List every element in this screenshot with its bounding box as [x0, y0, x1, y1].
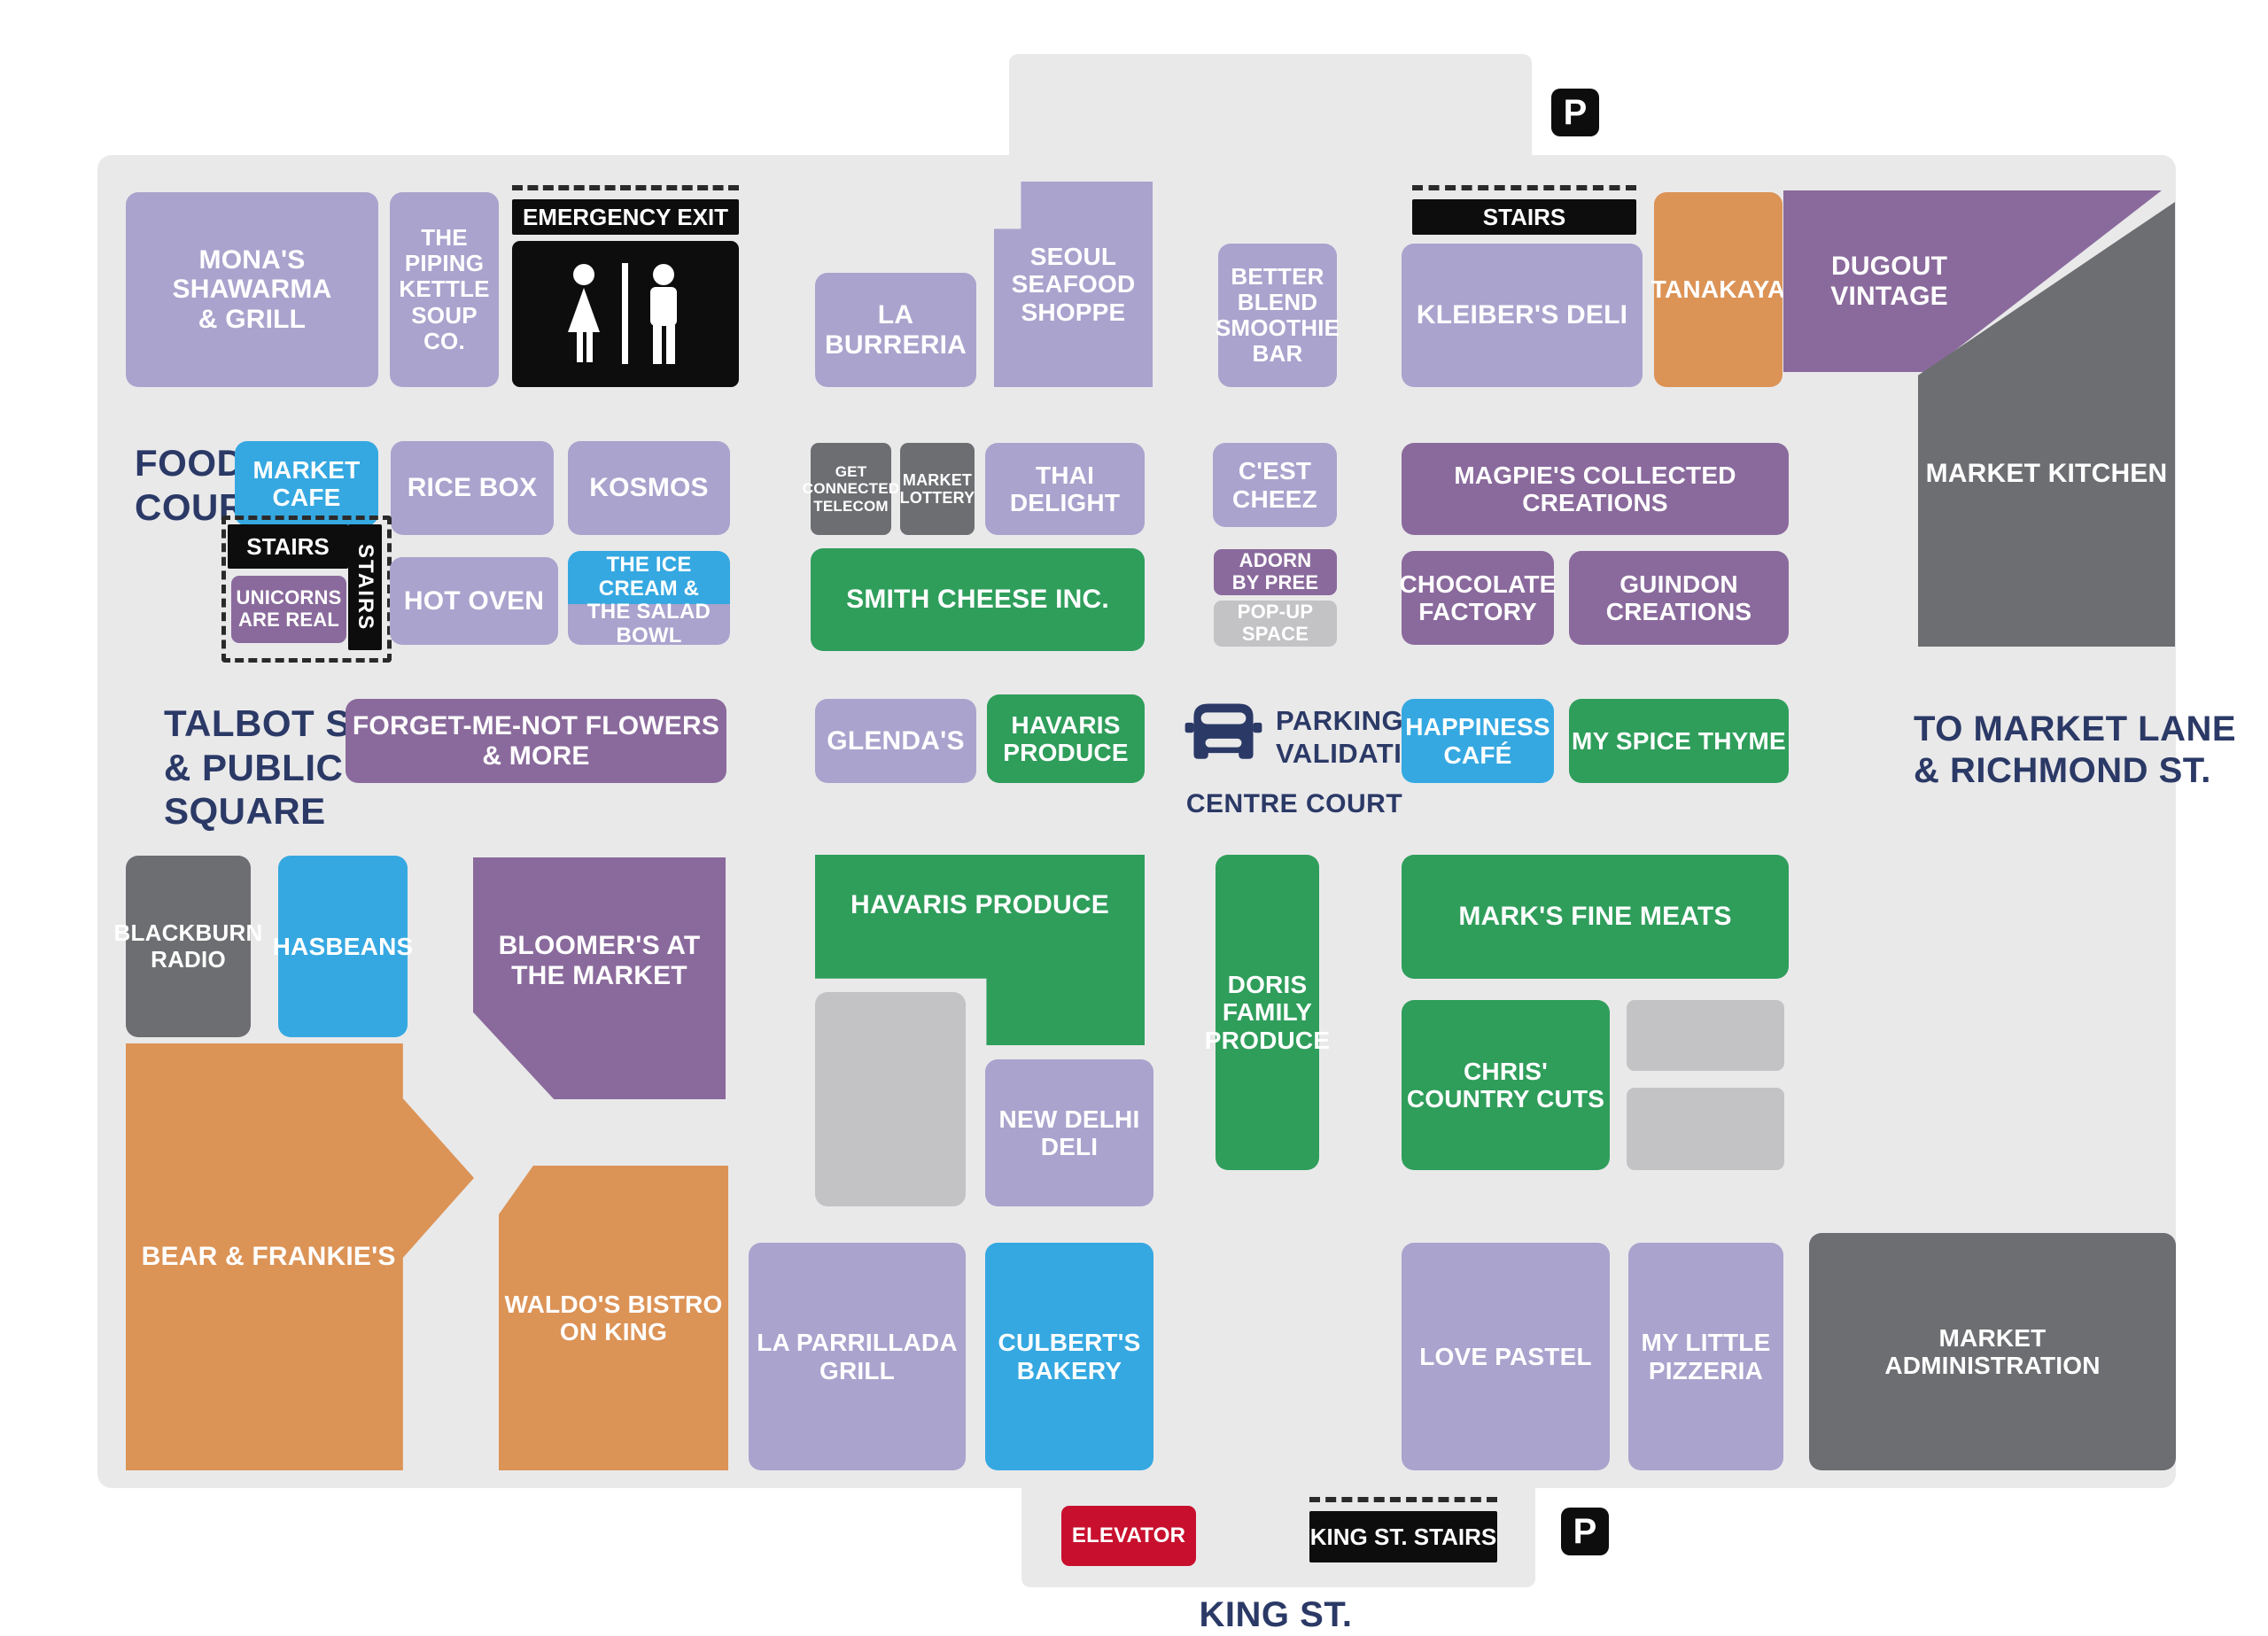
store-ice-cream[interactable]: THE ICE CREAM &: [568, 551, 730, 604]
vacant-space[interactable]: [815, 992, 966, 1206]
parking-icon-top: P: [1551, 89, 1599, 136]
store-kleibers-deli[interactable]: KLEIBER'S DELI: [1402, 244, 1643, 387]
store-label: BLOOMER'S AT THE MARKET: [499, 931, 701, 1026]
store-kosmos[interactable]: KOSMOS: [568, 441, 730, 535]
store-label: WALDO'S BISTRO ON KING: [505, 1291, 723, 1346]
vacant-space[interactable]: [1627, 1000, 1784, 1071]
store-label: NEW DELHI DELI: [999, 1105, 1140, 1161]
store-la-burreria[interactable]: LA BURRERIA: [815, 273, 976, 387]
store-havaris-produce-small[interactable]: HAVARIS PRODUCE: [987, 694, 1145, 783]
store-culberts-bakery[interactable]: CULBERT'S BAKERY: [985, 1243, 1153, 1470]
store-la-parrillada-grill[interactable]: LA PARRILLADA GRILL: [749, 1243, 966, 1470]
store-label: HOT OVEN: [404, 586, 544, 616]
store-chris-country-cuts[interactable]: CHRIS' COUNTRY CUTS: [1402, 1000, 1610, 1170]
vacant-space[interactable]: [1627, 1088, 1784, 1170]
stairs-food-court-vertical[interactable]: STAIRS: [348, 524, 382, 650]
store-market-cafe[interactable]: MARKET CAFE: [235, 441, 378, 526]
store-label: HAVARIS PRODUCE: [1003, 711, 1128, 767]
store-better-blend[interactable]: BETTER BLEND SMOOTHIE BAR: [1218, 244, 1337, 387]
store-adorn-by-pree[interactable]: ADORN BY PREE: [1214, 549, 1337, 595]
restrooms[interactable]: [512, 241, 739, 387]
parking-icon-bottom: P: [1561, 1508, 1609, 1555]
store-label: THE SALAD BOWL: [568, 601, 730, 648]
emergency-exit-banner: EMERGENCY EXIT: [512, 199, 739, 235]
stairs-top-banner[interactable]: STAIRS: [1412, 199, 1636, 235]
to-market-lane-label: TO MARKET LANE & RICHMOND ST.: [1914, 709, 2236, 792]
store-new-delhi-deli[interactable]: NEW DELHI DELI: [985, 1059, 1153, 1206]
store-label: SMITH CHEESE INC.: [846, 585, 1109, 615]
store-label: TANAKAYA: [1651, 275, 1786, 303]
store-label: KOSMOS: [589, 473, 709, 503]
store-label: MONA'S SHAWARMA & GRILL: [126, 245, 378, 335]
store-salad-bowl[interactable]: THE SALAD BOWL: [568, 604, 730, 645]
store-tanakaya[interactable]: TANAKAYA: [1654, 192, 1783, 387]
store-label: MARKET LOTTERY: [900, 471, 975, 507]
store-magpies-collected[interactable]: MAGPIE'S COLLECTED CREATIONS: [1402, 443, 1789, 535]
elevator[interactable]: ELEVATOR: [1061, 1506, 1196, 1566]
car-icon: [1184, 698, 1263, 762]
store-label: MY LITTLE PIZZERIA: [1642, 1329, 1771, 1384]
store-market-administration[interactable]: MARKET ADMINISTRATION: [1809, 1233, 2176, 1470]
store-label: SEOUL SEAFOOD SHOPPE: [1012, 243, 1136, 326]
store-label: C'EST CHEEZ: [1232, 457, 1317, 513]
store-label: GUINDON CREATIONS: [1606, 570, 1752, 626]
store-label: GET CONNECTED TELECOM: [803, 463, 899, 514]
store-label: DORIS FAMILY PRODUCE: [1205, 971, 1330, 1054]
store-label: MARKET ADMINISTRATION: [1884, 1324, 2100, 1380]
market-floor-plan: P P MONA'S SHAWARMA & GRILL THE PIPING K…: [0, 0, 2268, 1636]
store-label: HAPPINESS CAFÉ: [1405, 713, 1550, 769]
store-label: LA BURRERIA: [815, 300, 976, 360]
store-love-pastel[interactable]: LOVE PASTEL: [1402, 1243, 1610, 1470]
king-st-label: KING ST.: [1143, 1594, 1409, 1636]
stairs-food-court-horizontal[interactable]: STAIRS: [228, 524, 348, 569]
store-label: THAI DELIGHT: [985, 461, 1145, 517]
store-monas-shawarma[interactable]: MONA'S SHAWARMA & GRILL: [126, 192, 378, 387]
store-label: RICE BOX: [408, 473, 538, 503]
store-my-little-pizzeria[interactable]: MY LITTLE PIZZERIA: [1628, 1243, 1783, 1470]
elevator-label: ELEVATOR: [1072, 1524, 1185, 1548]
store-doris-family-produce[interactable]: DORIS FAMILY PRODUCE: [1216, 855, 1319, 1170]
store-label: UNICORNS ARE REAL: [237, 587, 342, 631]
store-label: CULBERT'S BAKERY: [998, 1329, 1141, 1384]
store-label: THE ICE CREAM &: [599, 554, 699, 601]
restroom-icons: [550, 261, 701, 368]
store-marks-fine-meats[interactable]: MARK'S FINE MEATS: [1402, 855, 1789, 979]
store-label: ADORN BY PREE: [1232, 550, 1319, 593]
store-label: BLACKBURN RADIO: [114, 920, 263, 972]
store-label: MAGPIE'S COLLECTED CREATIONS: [1454, 461, 1736, 517]
store-thai-delight[interactable]: THAI DELIGHT: [985, 443, 1145, 535]
store-get-connected-telecom[interactable]: GET CONNECTED TELECOM: [811, 443, 891, 535]
store-label: KLEIBER'S DELI: [1417, 300, 1627, 330]
store-label: HAVARIS PRODUCE: [850, 855, 1109, 920]
store-label: THE PIPING KETTLE SOUP CO.: [390, 225, 499, 354]
store-glendas[interactable]: GLENDA'S: [815, 699, 976, 783]
store-label: LA PARRILLADA GRILL: [757, 1329, 958, 1384]
store-label: MY SPICE THYME: [1572, 727, 1786, 755]
store-guindon-creations[interactable]: GUINDON CREATIONS: [1569, 551, 1789, 645]
store-label: HASBEANS: [273, 933, 414, 960]
store-popup-space[interactable]: POP-UP SPACE: [1214, 601, 1337, 647]
king-st-stairs-banner[interactable]: KING ST. STAIRS: [1309, 1511, 1497, 1562]
store-label: LOVE PASTEL: [1419, 1343, 1592, 1370]
store-market-lottery[interactable]: MARKET LOTTERY: [900, 443, 975, 535]
store-hasbeans[interactable]: HASBEANS: [278, 856, 408, 1037]
store-unicorns-are-real[interactable]: UNICORNS ARE REAL: [231, 576, 346, 643]
store-forget-me-not[interactable]: FORGET-ME-NOT FLOWERS & MORE: [346, 699, 726, 783]
top-corridor: [1009, 54, 1532, 169]
stairs-top-dashed-line: [1412, 185, 1636, 190]
emergency-exit-dashed-line: [512, 185, 739, 190]
store-waldos-bistro[interactable]: WALDO'S BISTRO ON KING: [499, 1166, 728, 1470]
store-label: CHOCOLATE FACTORY: [1399, 570, 1556, 626]
store-my-spice-thyme[interactable]: MY SPICE THYME: [1569, 699, 1789, 783]
store-blackburn-radio[interactable]: BLACKBURN RADIO: [126, 856, 251, 1037]
store-label: CHRIS' COUNTRY CUTS: [1407, 1058, 1604, 1113]
store-hot-oven[interactable]: HOT OVEN: [390, 557, 558, 645]
store-smith-cheese[interactable]: SMITH CHEESE INC.: [811, 548, 1145, 651]
store-label: FORGET-ME-NOT FLOWERS & MORE: [346, 711, 726, 771]
store-label: GLENDA'S: [827, 726, 964, 756]
store-rice-box[interactable]: RICE BOX: [391, 441, 554, 535]
store-piping-kettle[interactable]: THE PIPING KETTLE SOUP CO.: [390, 192, 499, 387]
store-label: POP-UP SPACE: [1238, 601, 1314, 645]
store-label: BETTER BLEND SMOOTHIE BAR: [1216, 264, 1340, 367]
store-label: MARKET CAFE: [253, 456, 361, 512]
store-cest-cheez[interactable]: C'EST CHEEZ: [1213, 443, 1337, 527]
centre-court-label: CENTRE COURT: [1184, 788, 1405, 819]
store-chocolate-factory[interactable]: CHOCOLATE FACTORY: [1402, 551, 1554, 645]
store-label: MARK'S FINE MEATS: [1458, 902, 1731, 932]
king-st-stairs-dashed-line: [1309, 1497, 1497, 1502]
store-happiness-cafe[interactable]: HAPPINESS CAFÉ: [1402, 699, 1554, 783]
